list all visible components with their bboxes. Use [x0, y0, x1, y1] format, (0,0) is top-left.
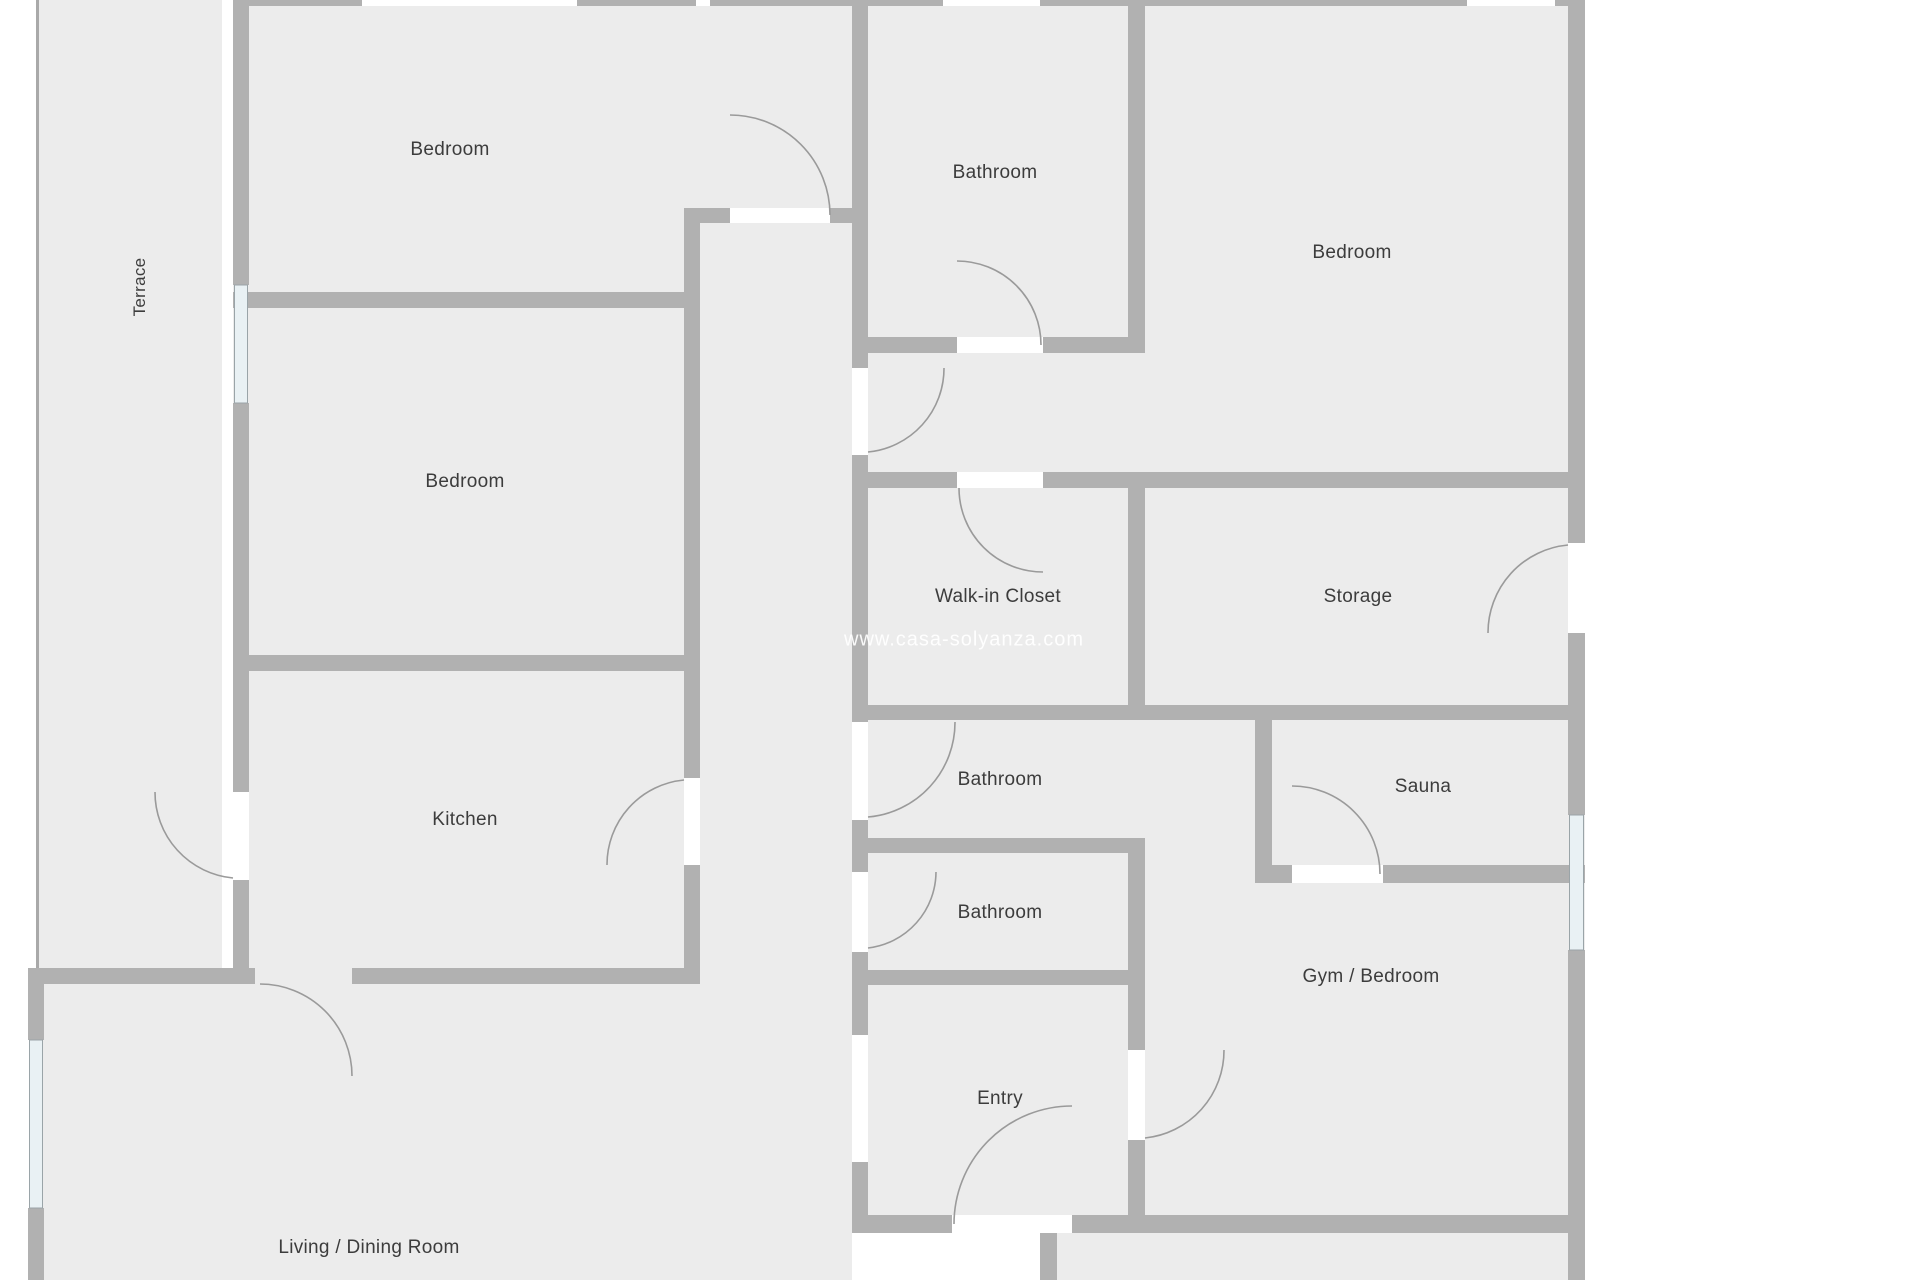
- floor-slabs: [28, 0, 1585, 1280]
- window-living-west: [30, 1040, 43, 1208]
- window-gym-east: [1570, 815, 1584, 950]
- room-label-bedroom-middle: Bedroom: [425, 471, 504, 493]
- room-label-kitchen: Kitchen: [432, 809, 497, 831]
- room-label-bathroom-top: Bathroom: [953, 162, 1038, 184]
- room-label-living-dining: Living / Dining Room: [278, 1237, 459, 1259]
- room-label-walk-in-closet: Walk-in Closet: [935, 586, 1061, 608]
- room-label-bathroom-middle: Bathroom: [958, 769, 1043, 791]
- watermark: www.casa-solyanza.com: [844, 629, 1084, 652]
- room-label-bedroom-top-left: Bedroom: [410, 139, 489, 161]
- room-label-storage: Storage: [1324, 586, 1393, 608]
- room-label-gym-bedroom: Gym / Bedroom: [1303, 966, 1440, 988]
- wall-terrace-west: [36, 0, 39, 968]
- room-label-entry: Entry: [977, 1088, 1023, 1110]
- room-label-sauna: Sauna: [1395, 776, 1451, 798]
- room-label-bedroom-top-right: Bedroom: [1312, 242, 1391, 264]
- window-bedroom-west: [235, 285, 248, 403]
- room-label-terrace: Terrace: [130, 258, 150, 317]
- floor-plan: Terrace Bedroom Bathroom Bedroom Bedroom…: [0, 0, 1920, 1280]
- room-label-bathroom-lower: Bathroom: [958, 902, 1043, 924]
